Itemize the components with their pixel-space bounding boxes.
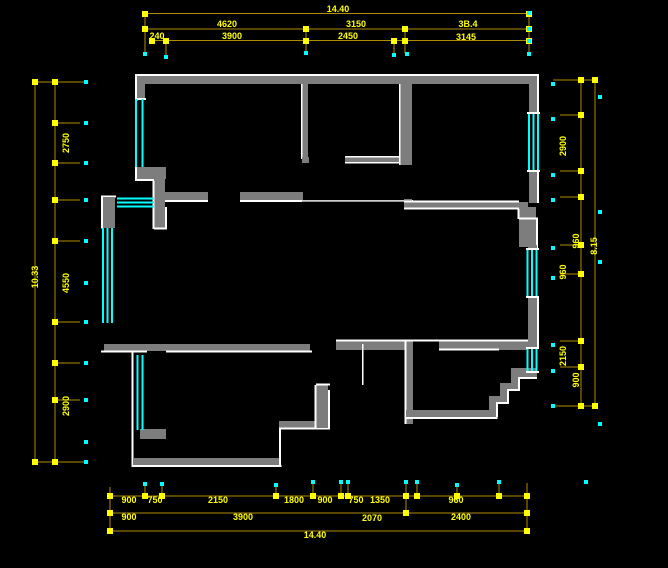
svg-text:4550: 4550 (61, 273, 71, 293)
svg-text:2150: 2150 (558, 346, 568, 366)
svg-text:4620: 4620 (217, 19, 237, 29)
svg-text:750: 750 (147, 495, 162, 505)
svg-text:14.40: 14.40 (327, 4, 350, 14)
svg-text:2150: 2150 (208, 495, 228, 505)
svg-text:960: 960 (558, 264, 568, 279)
svg-text:10.33: 10.33 (30, 266, 40, 289)
svg-text:8.15: 8.15 (589, 237, 599, 255)
svg-text:3900: 3900 (233, 512, 253, 522)
svg-text:900: 900 (571, 372, 581, 387)
svg-text:1800: 1800 (284, 495, 304, 505)
svg-text:240: 240 (149, 31, 164, 41)
svg-text:3900: 3900 (222, 31, 242, 41)
svg-text:14.40: 14.40 (304, 530, 327, 540)
svg-text:2750: 2750 (61, 133, 71, 153)
svg-text:3B.4: 3B.4 (458, 19, 477, 29)
svg-text:750: 750 (348, 495, 363, 505)
svg-text:2070: 2070 (362, 513, 382, 523)
svg-text:2900: 2900 (558, 136, 568, 156)
svg-text:900: 900 (121, 495, 136, 505)
svg-text:900: 900 (317, 495, 332, 505)
svg-text:960: 960 (448, 495, 463, 505)
svg-text:2400: 2400 (451, 512, 471, 522)
svg-text:900: 900 (121, 512, 136, 522)
svg-text:1350: 1350 (370, 495, 390, 505)
svg-text:3150: 3150 (346, 19, 366, 29)
svg-text:2900: 2900 (61, 396, 71, 416)
svg-text:960: 960 (571, 233, 581, 248)
svg-text:2450: 2450 (338, 31, 358, 41)
svg-text:3145: 3145 (456, 32, 476, 42)
